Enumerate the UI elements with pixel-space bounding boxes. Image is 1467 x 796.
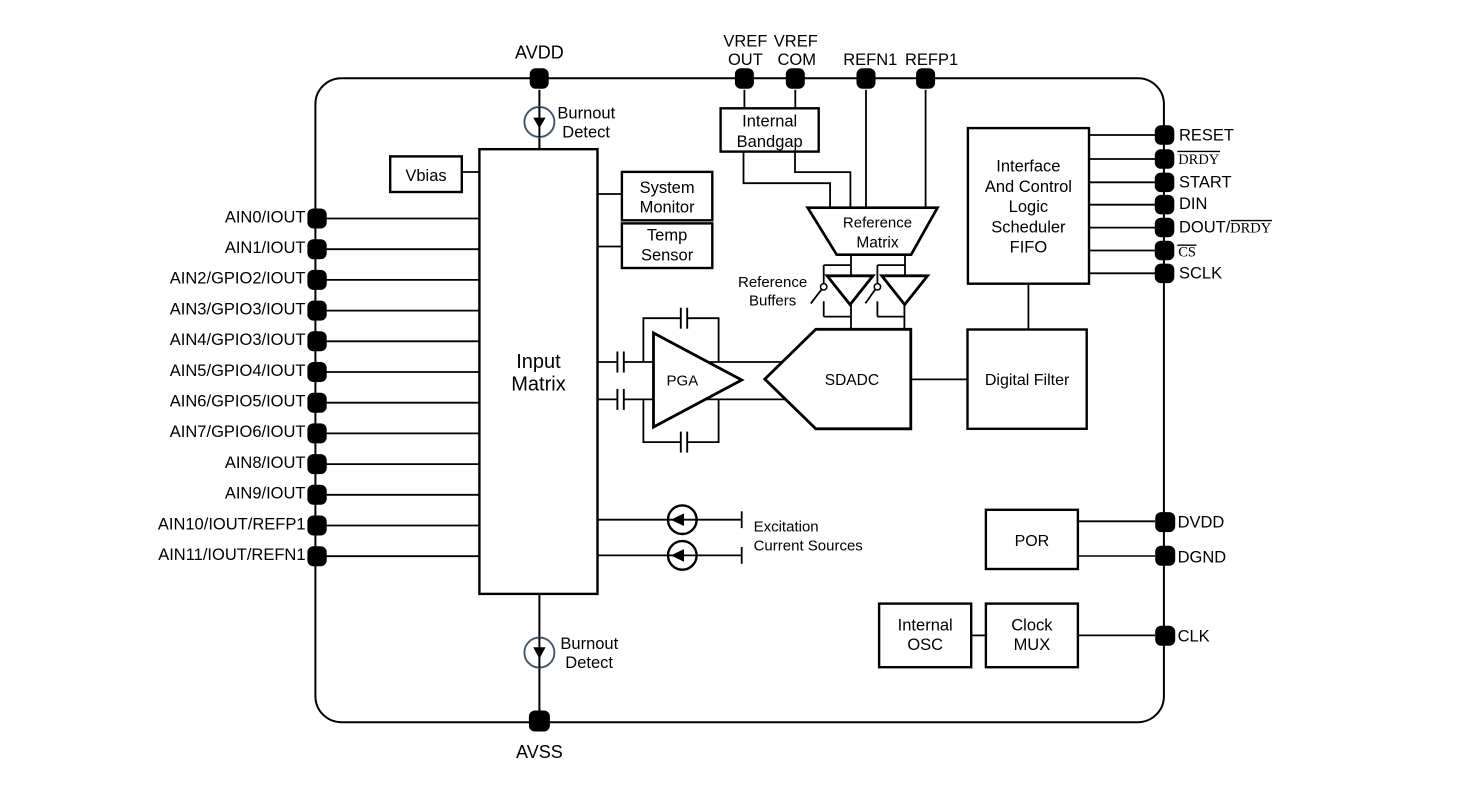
svg-text:Matrix: Matrix bbox=[856, 235, 898, 252]
svg-text:Reference: Reference bbox=[843, 215, 912, 232]
svg-text:AVDD: AVDD bbox=[515, 43, 564, 63]
svg-text:CLK: CLK bbox=[1178, 627, 1210, 645]
svg-text:Sensor: Sensor bbox=[641, 247, 694, 265]
svg-text:Temp: Temp bbox=[647, 226, 687, 244]
svg-text:Bandgap: Bandgap bbox=[737, 133, 803, 151]
svg-text:START: START bbox=[1179, 173, 1232, 191]
svg-text:DIN: DIN bbox=[1179, 195, 1207, 213]
svg-text:System: System bbox=[640, 179, 695, 197]
svg-text:AIN7/GPIO6/IOUT: AIN7/GPIO6/IOUT bbox=[170, 423, 306, 441]
svg-text:OSC: OSC bbox=[907, 636, 943, 654]
svg-text:DGND: DGND bbox=[1178, 549, 1227, 567]
svg-text:AIN0/IOUT: AIN0/IOUT bbox=[225, 208, 306, 226]
svg-text:SDADC: SDADC bbox=[825, 372, 879, 389]
svg-text:VREF: VREF bbox=[723, 33, 767, 51]
svg-text:Buffers: Buffers bbox=[749, 293, 796, 310]
svg-text:FIFO: FIFO bbox=[1010, 239, 1048, 257]
svg-text:SCLK: SCLK bbox=[1179, 265, 1222, 283]
svg-text:REFP1: REFP1 bbox=[905, 51, 958, 69]
svg-text:Excitation: Excitation bbox=[754, 519, 819, 536]
svg-text:Clock: Clock bbox=[1011, 616, 1053, 634]
svg-text:POR: POR bbox=[1015, 533, 1050, 550]
svg-text:Monitor: Monitor bbox=[640, 198, 696, 216]
svg-text:OUT: OUT bbox=[728, 51, 763, 69]
svg-text:Current Sources: Current Sources bbox=[754, 538, 863, 555]
svg-text:DVDD: DVDD bbox=[1178, 514, 1225, 532]
svg-text:Matrix: Matrix bbox=[511, 373, 565, 395]
svg-text:Internal: Internal bbox=[898, 616, 953, 634]
svg-text:PGA: PGA bbox=[667, 373, 699, 390]
svg-text:RESET: RESET bbox=[1179, 126, 1234, 144]
svg-text:Interface: Interface bbox=[996, 158, 1060, 176]
svg-text:Vbias: Vbias bbox=[405, 167, 446, 185]
svg-text:AIN2/GPIO2/IOUT: AIN2/GPIO2/IOUT bbox=[170, 270, 306, 288]
svg-text:Input: Input bbox=[516, 351, 561, 373]
svg-text:AIN1/IOUT: AIN1/IOUT bbox=[225, 239, 306, 257]
svg-text:Detect: Detect bbox=[565, 654, 613, 672]
svg-text:Logic: Logic bbox=[1009, 198, 1048, 216]
svg-text:AIN6/GPIO5/IOUT: AIN6/GPIO5/IOUT bbox=[170, 393, 306, 411]
svg-text:Detect: Detect bbox=[562, 123, 610, 141]
svg-text:CS: CS bbox=[1178, 245, 1196, 261]
svg-text:Scheduler: Scheduler bbox=[991, 218, 1066, 236]
svg-text:Burnout: Burnout bbox=[557, 104, 615, 122]
svg-text:MUX: MUX bbox=[1014, 636, 1051, 654]
svg-text:Internal: Internal bbox=[742, 113, 797, 131]
svg-text:AIN10/IOUT/REFP1: AIN10/IOUT/REFP1 bbox=[158, 515, 306, 533]
svg-text:AIN9/IOUT: AIN9/IOUT bbox=[225, 485, 306, 503]
svg-text:REFN1: REFN1 bbox=[843, 51, 897, 69]
svg-text:DRDY: DRDY bbox=[1178, 152, 1220, 168]
svg-text:DRDY: DRDY bbox=[1230, 220, 1272, 236]
svg-text:VREF: VREF bbox=[774, 33, 818, 51]
svg-text:Reference: Reference bbox=[738, 274, 807, 291]
svg-text:AVSS: AVSS bbox=[516, 742, 563, 762]
svg-text:AIN11/IOUT/REFN1: AIN11/IOUT/REFN1 bbox=[158, 546, 305, 564]
svg-text:AIN8/IOUT: AIN8/IOUT bbox=[225, 454, 306, 472]
svg-text:And Control: And Control bbox=[985, 178, 1072, 196]
svg-text:AIN5/GPIO4/IOUT: AIN5/GPIO4/IOUT bbox=[170, 362, 306, 380]
svg-text:Burnout: Burnout bbox=[560, 635, 618, 653]
svg-text:AIN3/GPIO3/IOUT: AIN3/GPIO3/IOUT bbox=[170, 300, 306, 318]
svg-text:AIN4/GPIO3/IOUT: AIN4/GPIO3/IOUT bbox=[170, 331, 306, 349]
svg-text:Digital Filter: Digital Filter bbox=[985, 372, 1070, 389]
svg-text:COM: COM bbox=[777, 51, 816, 69]
svg-text:DOUT/: DOUT/ bbox=[1179, 218, 1231, 236]
